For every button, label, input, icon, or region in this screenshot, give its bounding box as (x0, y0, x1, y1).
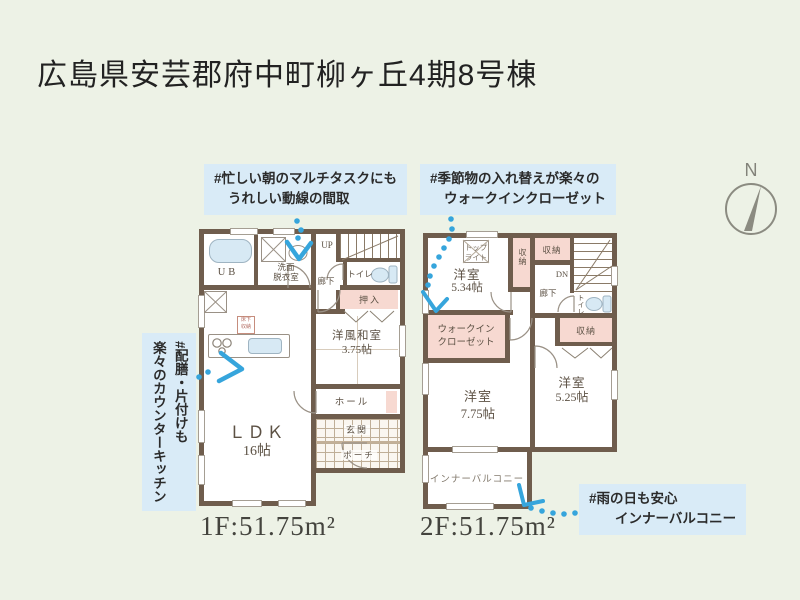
room-label-ub: UB (218, 267, 239, 278)
entrance-text: 玄関 (344, 425, 370, 435)
wall (530, 238, 535, 318)
wall (199, 285, 316, 290)
underfloor-label-2: 収納 (238, 324, 254, 331)
window (446, 503, 494, 510)
room-label-bedroom534-2: 5.34帖 (451, 279, 483, 295)
porch-text: ポーチ (341, 450, 377, 460)
annotation-balcony-line1: #雨の日も安心 (589, 489, 736, 509)
wall (527, 447, 532, 509)
window (230, 228, 258, 235)
room-label-porch: ポーチ (341, 449, 377, 461)
window (198, 410, 205, 443)
annotation-kitchen-line1: #配膳・片付けも (169, 341, 191, 503)
room-label-washitsu-2: 3.75帖 (342, 341, 372, 357)
wall (254, 234, 258, 285)
room-label-ldk-2: 16帖 (243, 440, 271, 460)
window (278, 500, 306, 507)
window (422, 455, 429, 483)
window (422, 363, 429, 395)
floor2-area-label: 2F:51.75m² (420, 511, 556, 542)
wall (311, 384, 405, 389)
window (466, 231, 498, 238)
wall (530, 260, 574, 265)
window (611, 370, 618, 400)
underfloor-storage-box: 床下 収納 (237, 316, 255, 334)
stairs-2f (574, 238, 612, 292)
compass-north-label: N (745, 160, 758, 181)
window (198, 455, 205, 485)
wall (423, 233, 617, 238)
annotation-kitchen-line2: 楽々のカウンターキッチン (147, 341, 169, 503)
wall (311, 309, 345, 314)
room-label-washroom-2: 脱衣室 (273, 271, 299, 283)
room-label-inner-balcony: インナーバルコニー (430, 471, 524, 485)
annotation-balcony-line2: インナーバルコニー (615, 509, 736, 529)
fridge-box (204, 291, 227, 313)
bathtub-icon (209, 239, 252, 263)
wall (311, 234, 316, 506)
room-label-hallway-1f: 廊下 (317, 275, 334, 287)
wall (555, 342, 617, 346)
room-label-wic-1: ウォークイン (437, 321, 494, 335)
room-label-up: UP (321, 240, 333, 250)
window (232, 500, 262, 507)
underfloor-label-1: 床下 (238, 317, 254, 324)
room-label-bedroom775-2: 7.75帖 (461, 403, 495, 422)
annotation-kitchen: #配膳・片付けも 楽々のカウンターキッチン (142, 333, 196, 511)
floorplan-page: 床下 収納 (0, 0, 800, 600)
wall (423, 310, 513, 315)
window (452, 446, 498, 453)
wall (316, 468, 405, 473)
room-label-toilet-1f: トイレ (347, 268, 373, 280)
wall (532, 447, 617, 452)
wall (340, 285, 405, 290)
annotation-closet-line2: ウォークインクローゼット (444, 189, 606, 209)
room-label-skylight-2: ライト (465, 252, 488, 263)
kitchen-sink-icon (248, 338, 282, 354)
window (422, 290, 429, 314)
entrance-step (316, 441, 400, 443)
room-label-hallway-2f: 廊下 (539, 287, 556, 299)
room-label-storage-side: 収納 (517, 248, 528, 266)
annotation-closet-line1: #季節物の入れ替えが楽々の (430, 169, 606, 189)
compass-icon (726, 184, 776, 234)
wall (570, 238, 574, 293)
wall (508, 287, 535, 292)
wall (555, 318, 560, 342)
wall (530, 313, 617, 318)
wall (336, 290, 340, 309)
annotation-morning: #忙しい朝のマルチタスクにも うれしい動線の間取 (204, 164, 407, 215)
room-label-dn: DN (556, 269, 568, 279)
shoe-cabinet (386, 391, 397, 413)
window (611, 266, 618, 286)
room-label-bedroom525-2: 5.25帖 (555, 388, 588, 405)
wall (508, 238, 513, 292)
room-label-toilet-2f: トイレ (576, 294, 586, 315)
room-label-hall: ホール (335, 394, 370, 408)
wall (505, 315, 510, 358)
stairs-1f (340, 234, 400, 258)
wall (311, 414, 405, 419)
annotation-closet: #季節物の入れ替えが楽々の ウォークインクローゼット (420, 164, 616, 215)
annotation-balcony: #雨の日も安心 インナーバルコニー (579, 484, 746, 535)
room-label-storage-right: 収納 (576, 324, 596, 337)
page-title: 広島県安芸郡府中町柳ヶ丘4期8号棟 (37, 50, 537, 94)
annotation-morning-line2: うれしい動線の間取 (228, 189, 397, 209)
room-label-wic-2: クローゼット (437, 334, 494, 348)
washer-box (261, 237, 286, 262)
window (399, 325, 406, 357)
room-label-oshiire: 押入 (359, 293, 381, 306)
floor1-area-label: 1F:51.75m² (200, 511, 336, 542)
room-label-entrance: 玄関 (344, 423, 370, 436)
annotation-morning-line1: #忙しい朝のマルチタスクにも (214, 169, 397, 189)
wall (530, 315, 535, 452)
wall (423, 358, 510, 363)
room-label-storage-top: 収納 (542, 244, 561, 256)
window (273, 228, 295, 235)
